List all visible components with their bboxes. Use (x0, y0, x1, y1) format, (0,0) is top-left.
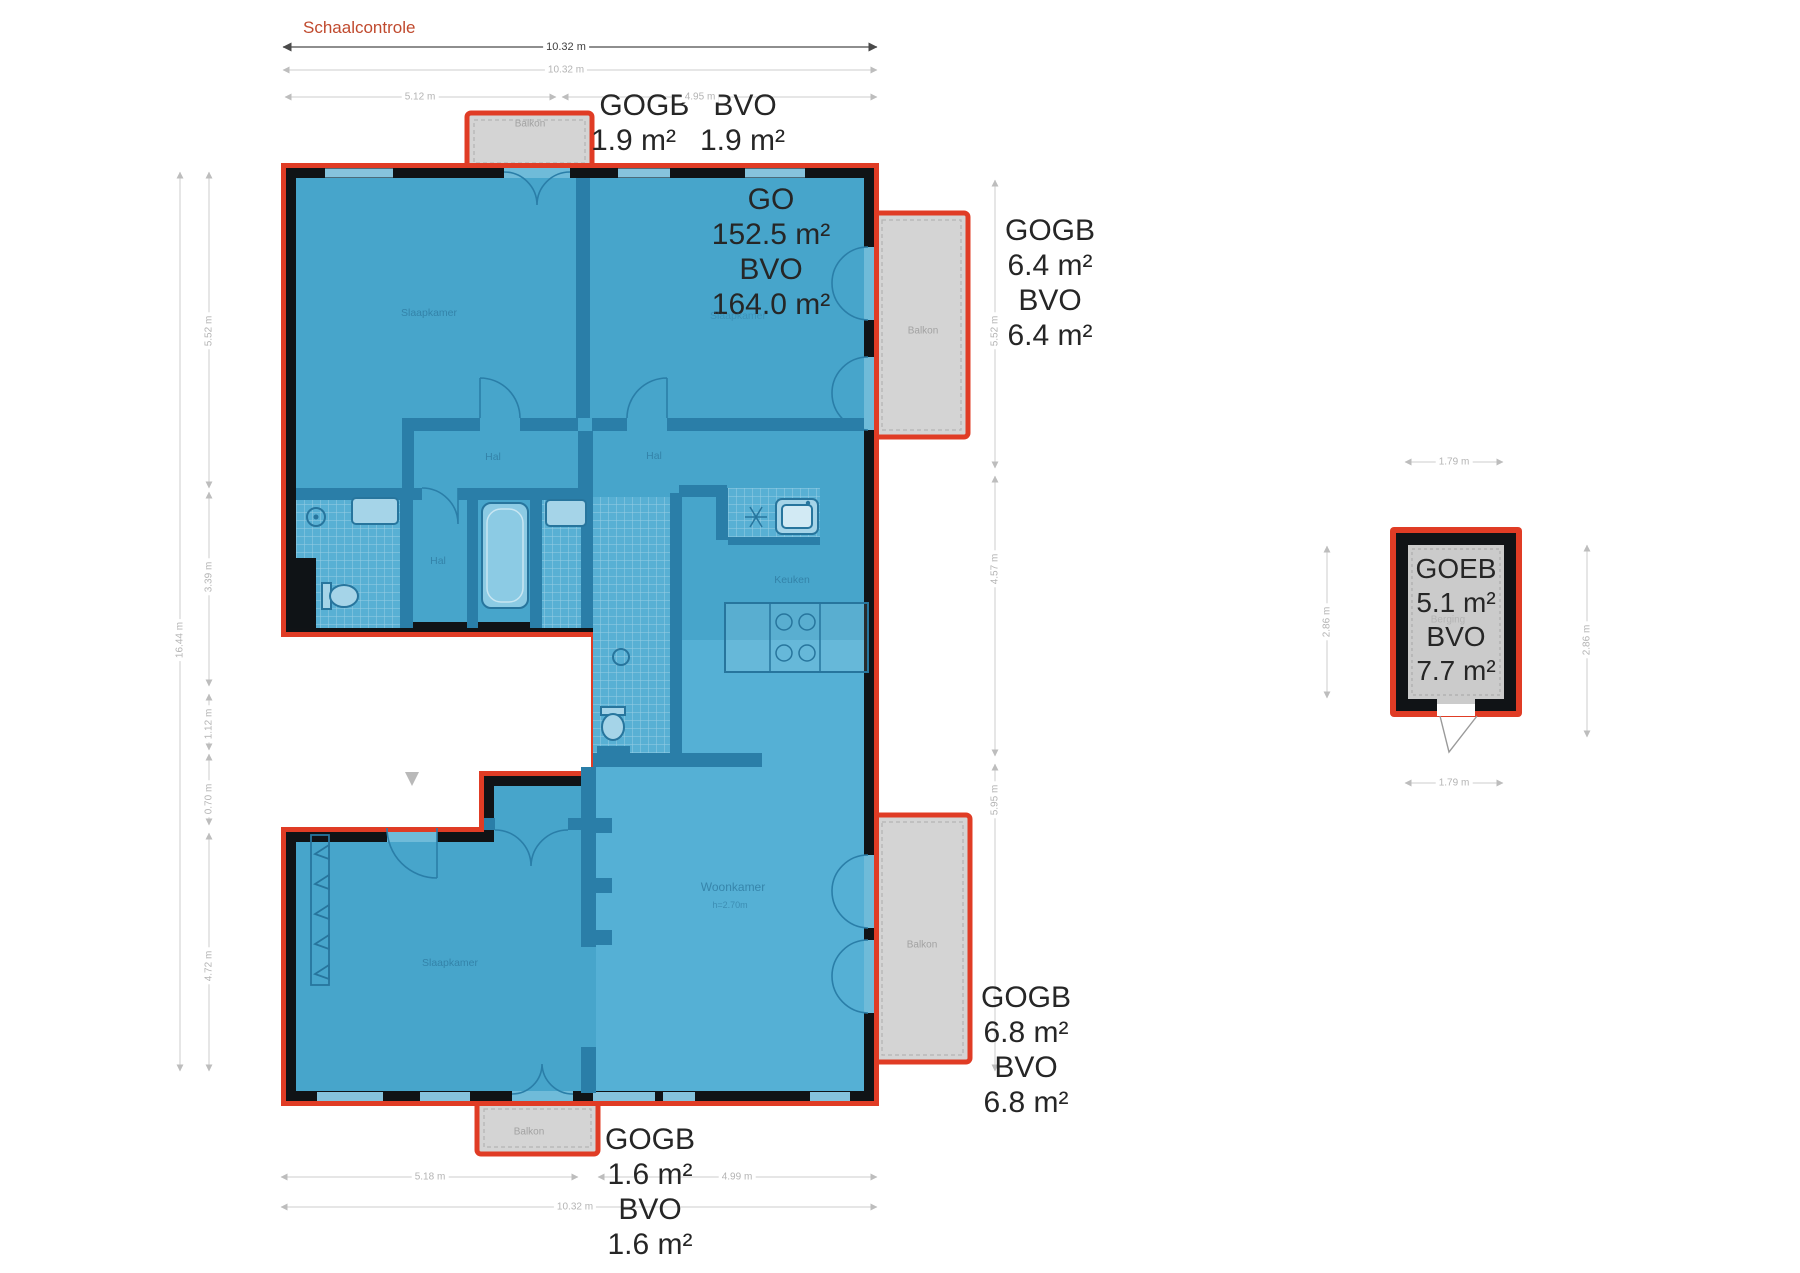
dim-label: 5.95 m (990, 782, 1001, 819)
bathtub (482, 503, 528, 608)
area-code: GOGB (981, 980, 1071, 1015)
area-label-balcony-right-top: GOGB 6.4 m² BVO 6.4 m² (1005, 213, 1095, 353)
dim-label: 1.79 m (1436, 457, 1473, 468)
dim-label: 5.12 m (402, 92, 439, 103)
area-value: 1.6 m² (605, 1227, 695, 1262)
balcony-label: Balkon (514, 1127, 545, 1138)
balcony-right-bottom (875, 815, 970, 1062)
entrance-marker (405, 772, 419, 786)
dim-label: 5.52 m (990, 313, 1001, 350)
area-value: 6.8 m² (981, 1085, 1071, 1120)
dim-label: 4.57 m (990, 551, 1001, 588)
area-value: 7.7 m² (1416, 654, 1497, 688)
room-label-kitchen: Keuken (774, 574, 810, 586)
dim-label: 10.32 m (543, 41, 589, 53)
area-code: BVO (713, 88, 776, 123)
area-code: GOGB (599, 88, 689, 123)
room-label-bedroom: Slaapkamer (401, 307, 457, 319)
area-code: BVO (605, 1192, 695, 1227)
floorplan-drawing (0, 0, 1800, 1273)
outbuilding-door-swing (1440, 716, 1477, 752)
kitchen-counter (725, 603, 868, 672)
area-code: BVO (712, 252, 830, 287)
dim-label: 2.86 m (1322, 604, 1333, 641)
toilet-bowl (602, 714, 624, 740)
room-label-bedroom: Slaapkamer (710, 310, 766, 322)
area-value: 6.8 m² (981, 1015, 1071, 1050)
area-code: GO (712, 182, 830, 217)
sink (546, 500, 586, 526)
area-code: GOEB (1416, 552, 1497, 586)
dim-label: 4.95 m (682, 92, 719, 103)
dim-label: 2.86 m (1582, 622, 1593, 659)
area-code: GOGB (1005, 213, 1095, 248)
dim-label: 1.12 m (204, 706, 215, 743)
balcony-label: Balkon (907, 940, 938, 951)
wall-block (288, 558, 316, 628)
area-value: 1.9 m² (591, 123, 676, 158)
area-code: GOGB (605, 1122, 695, 1157)
area-label-balcony-bottom: GOGB 1.6 m² BVO 1.6 m² (605, 1122, 695, 1262)
room-label-living: Woonkamer (701, 880, 765, 894)
area-value: 6.4 m² (1005, 248, 1095, 283)
dim-label: 1.79 m (1436, 778, 1473, 789)
area-code: BVO (1005, 283, 1095, 318)
floorplan-page: Schaalcontrole GOGB BVO 1.9 m² 1.9 m² GO… (0, 0, 1800, 1273)
dim-label: 5.52 m (204, 313, 215, 350)
room-label-storage: Berging (1431, 615, 1465, 626)
dim-label: 3.39 m (204, 559, 215, 596)
sink (352, 498, 398, 524)
dim-label: 4.72 m (204, 948, 215, 985)
room-label-bedroom: Slaapkamer (422, 957, 478, 969)
area-value: 1.6 m² (605, 1157, 695, 1192)
balcony-label: Balkon (515, 119, 546, 130)
dim-label: 10.32 m (545, 65, 587, 76)
room-label-hall: Hal (485, 451, 501, 463)
balcony-label: Balkon (908, 326, 939, 337)
area-label-main: GO 152.5 m² BVO 164.0 m² (712, 182, 830, 322)
dim-label: 16.44 m (175, 619, 186, 661)
dim-label: 4.99 m (719, 1172, 756, 1183)
room-label-hall: Hal (430, 555, 446, 567)
area-code: BVO (981, 1050, 1071, 1085)
dim-label: 5.18 m (412, 1172, 449, 1183)
scale-check-title: Schaalcontrole (303, 18, 415, 38)
room-ceiling-height: h=2.70m (712, 900, 747, 910)
area-value: 152.5 m² (712, 217, 830, 252)
area-value: 6.4 m² (1005, 318, 1095, 353)
dim-label: 10.32 m (554, 1202, 596, 1213)
dim-label: 0.70 m (204, 781, 215, 818)
toilet-bowl (330, 585, 358, 607)
area-label-balcony-right-bottom: GOGB 6.8 m² BVO 6.8 m² (981, 980, 1071, 1120)
room-label-hall: Hal (646, 450, 662, 462)
area-value: 1.9 m² (700, 123, 785, 158)
